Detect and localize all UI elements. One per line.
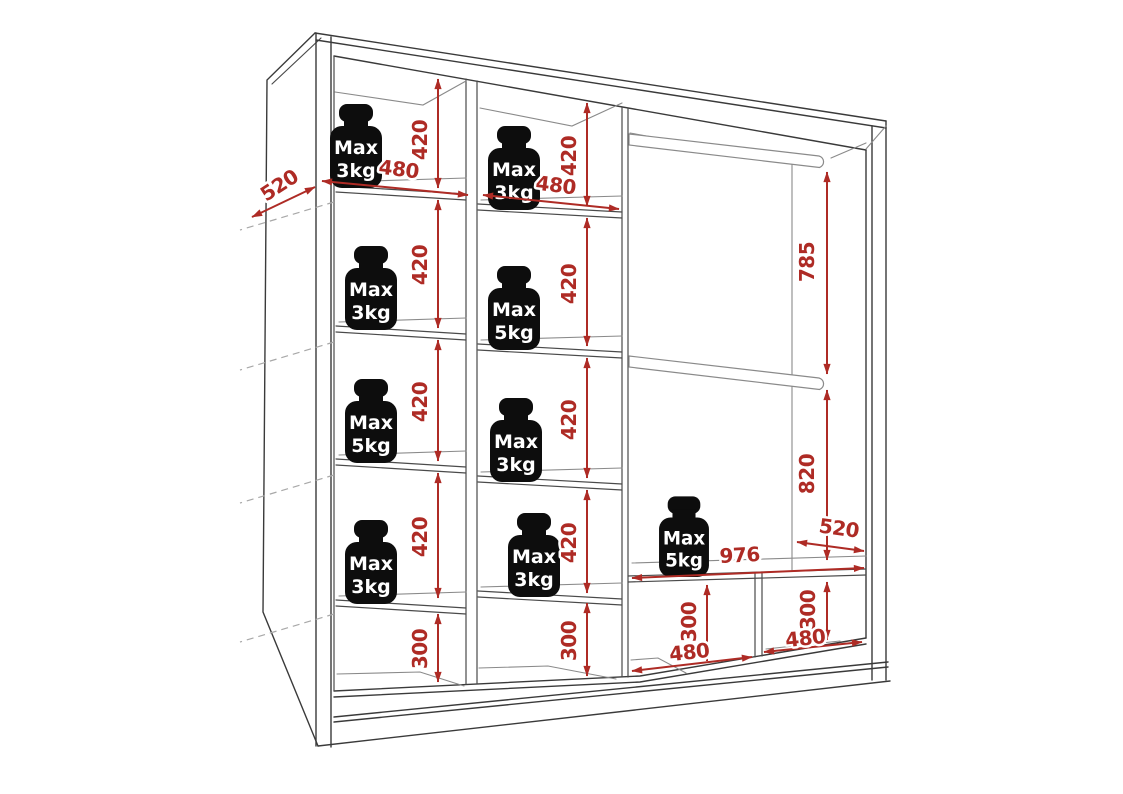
dim-column2-bottom: 300 (557, 621, 581, 661)
diagram-canvas: Max 3kg Max 3kg Max 3kg Max 5kg Max 5kg … (0, 0, 1123, 794)
dim-column1-row4: 420 (408, 517, 432, 557)
weight-label-line2: 3kg (351, 576, 390, 598)
dim-hanging-lower: 820 (795, 454, 819, 494)
weight-hanging-shelf: Max 5kg (659, 496, 709, 577)
weight-column2-row2: Max 5kg (488, 266, 540, 350)
weight-label-line1: Max (494, 431, 538, 453)
hidden-depth-lines (240, 202, 334, 642)
dim-column2-row1: 420 (557, 136, 581, 176)
weight-label-line2: 3kg (351, 302, 390, 324)
weight-column1-row3: Max 5kg (345, 379, 397, 463)
dim-hanging-upper: 785 (795, 242, 819, 282)
dim-column1-row3: 420 (408, 382, 432, 422)
weight-label-line1: Max (663, 528, 705, 549)
weight-column1-row1: Max 3kg (330, 104, 382, 188)
weight-label-line1: Max (334, 137, 378, 159)
dim-bottom-right-width: 480 (784, 624, 827, 652)
weight-label-line2: 5kg (494, 322, 533, 344)
weight-label-line1: Max (349, 553, 393, 575)
weight-label-line2: 3kg (336, 160, 375, 182)
left-side-panel-outline (263, 33, 318, 746)
dim-column2-row2: 420 (557, 264, 581, 304)
dim-column2-row4: 420 (557, 523, 581, 563)
weight-column1-row2: Max 3kg (345, 246, 397, 330)
dim-bottom-left-height: 300 (677, 602, 701, 642)
dim-bottom-left-width: 480 (668, 638, 711, 666)
dim-column1-row1: 420 (408, 120, 432, 160)
weight-label-line1: Max (349, 412, 393, 434)
weight-label-line2: 3kg (514, 569, 553, 591)
weight-label-line2: 5kg (351, 435, 390, 457)
dim-column1-bottom: 300 (408, 629, 432, 669)
weight-column2-row3: Max 3kg (490, 398, 542, 482)
weight-label-line2: 3kg (494, 182, 533, 204)
dim-hanging-depth: 520 (817, 513, 860, 542)
weight-column1-row4: Max 3kg (345, 520, 397, 604)
dim-hanging-shelf-width: 976 (719, 542, 760, 568)
wardrobe-dimension-diagram: Max 3kg Max 3kg Max 3kg Max 5kg Max 5kg … (0, 0, 1123, 794)
weight-label-line1: Max (512, 546, 556, 568)
weight-label-line1: Max (492, 299, 536, 321)
weight-label-line1: Max (349, 279, 393, 301)
dim-column1-row2: 420 (408, 245, 432, 285)
weight-label-line1: Max (492, 159, 536, 181)
hanging-section (628, 134, 866, 673)
weight-column2-row4: Max 3kg (508, 513, 560, 597)
dim-column2-row3: 420 (557, 400, 581, 440)
clothes-rail-bottom (629, 356, 824, 390)
weight-label-line2: 3kg (496, 454, 535, 476)
weight-label-line2: 5kg (665, 550, 703, 571)
clothes-rail-top (629, 134, 824, 168)
dim-depth-top-left: 520 (256, 164, 303, 206)
